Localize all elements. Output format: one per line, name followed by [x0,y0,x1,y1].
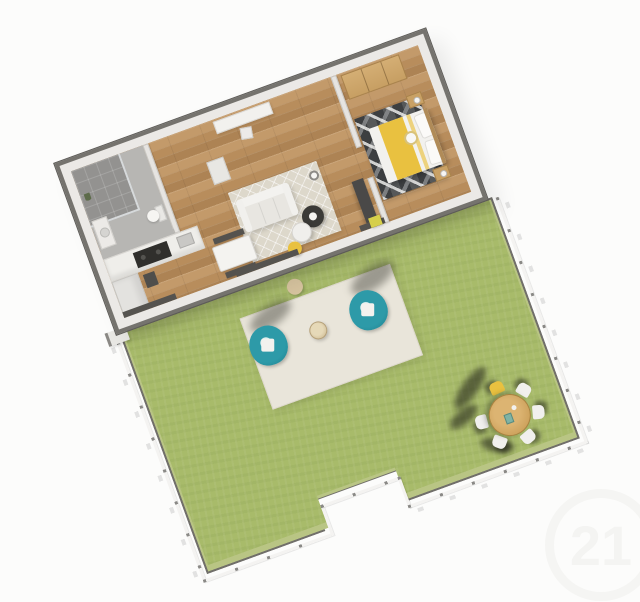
sofa-seam [272,198,280,219]
bed-yellow-stripe [378,117,422,180]
chair-cushion [361,303,374,316]
table-lamp [308,211,318,221]
nightstand-lamp [439,169,448,178]
scene-world [0,0,640,602]
entry-chair [240,126,254,140]
sink-bowl [99,226,112,239]
wardrobe-door-line [361,69,370,92]
table-decor [503,412,514,424]
sofa-seam [258,203,266,224]
nightstand-lamp [413,96,422,105]
burner [155,249,161,255]
table-decor [511,404,517,410]
garden-chair [532,405,545,420]
watermark-text: 21 [570,513,632,578]
chair-cushion [261,339,274,352]
wardrobe-door-line [380,62,389,85]
floorplan-3d-render: 21 [0,0,640,602]
burner [140,254,146,260]
